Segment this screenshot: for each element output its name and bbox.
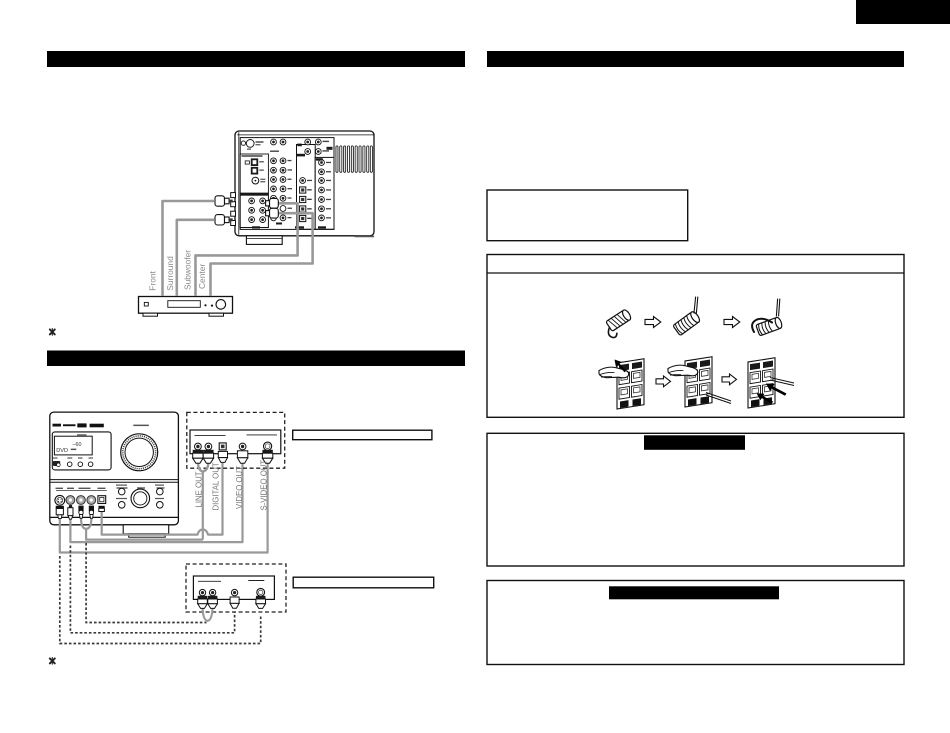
svg-text:VIDEO OUT: VIDEO OUT bbox=[235, 466, 244, 509]
svg-text:Front: Front bbox=[148, 270, 158, 290]
svg-text:Center: Center bbox=[197, 264, 207, 289]
svg-text:S-VIDEO OUT: S-VIDEO OUT bbox=[260, 460, 269, 511]
svg-text:Surround: Surround bbox=[165, 256, 175, 291]
svg-text:Subwoofer: Subwoofer bbox=[182, 250, 192, 290]
svg-text:DIGITAL OUT: DIGITAL OUT bbox=[212, 462, 221, 510]
svg-text:LINE OUT: LINE OUT bbox=[195, 471, 204, 507]
svg-text:DVD: DVD bbox=[56, 448, 68, 454]
svg-text:–60: –60 bbox=[73, 442, 82, 448]
